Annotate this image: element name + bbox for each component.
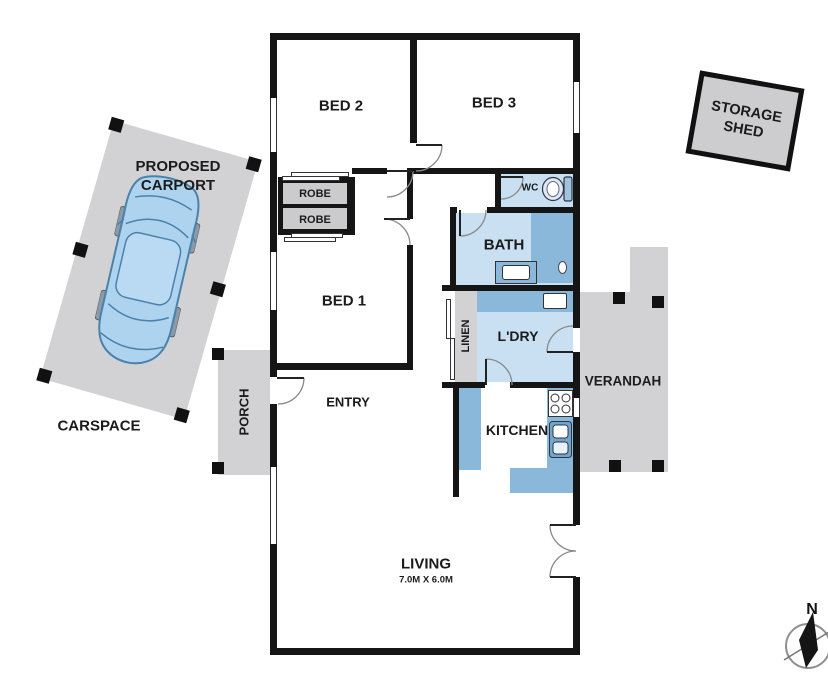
toilet-icon — [540, 174, 574, 204]
carport-label-line1: PROPOSED — [135, 158, 220, 175]
laundry-floor — [477, 312, 573, 382]
carport-post — [174, 407, 190, 423]
post — [652, 460, 664, 472]
wall — [487, 207, 580, 213]
carport-post — [72, 242, 88, 258]
kitchen-sink-icon — [549, 421, 572, 458]
car-icon — [86, 165, 210, 374]
bath-fitting — [558, 261, 567, 274]
post — [652, 296, 664, 308]
room-label-bath: BATH — [484, 237, 525, 254]
wall — [270, 33, 580, 40]
wall — [442, 382, 485, 388]
wall — [573, 352, 580, 398]
carport-post — [210, 281, 226, 297]
room-label-verandah: VERANDAH — [585, 374, 662, 389]
verandah-area — [630, 247, 668, 292]
carspace-label: CARSPACE — [57, 418, 140, 435]
carport-label: PROPOSED CARPORT — [135, 157, 220, 195]
wall — [270, 404, 277, 467]
wall — [270, 544, 277, 655]
wall — [450, 207, 456, 291]
post — [613, 292, 625, 304]
wall — [270, 648, 580, 655]
room-label-living: LIVING — [401, 556, 451, 573]
post — [609, 460, 621, 472]
wall — [573, 133, 580, 328]
room-label-bed1: BED 1 — [322, 293, 366, 310]
post — [212, 462, 224, 474]
wall — [270, 33, 277, 98]
storage-shed: STORAGE SHED — [686, 70, 805, 171]
living-dimensions: 7.0M X 6.0M — [399, 575, 453, 586]
sliding-door — [282, 176, 340, 181]
laundry-sink — [543, 293, 567, 309]
bed1-window — [270, 252, 277, 310]
kitchen-window — [573, 398, 580, 417]
room-label-entry: ENTRY — [326, 395, 370, 410]
wall — [442, 285, 580, 291]
room-label-linen: LINEN — [460, 320, 472, 353]
wall — [573, 417, 580, 525]
carport-post — [36, 368, 52, 384]
sliding-door — [450, 338, 455, 380]
carport-label-line2: CARPORT — [141, 177, 215, 194]
room-label-kitchen: KITCHEN — [486, 422, 548, 438]
wall — [495, 168, 501, 207]
carport-post — [108, 117, 124, 133]
wall — [510, 382, 580, 388]
room-label-bed3: BED 3 — [472, 95, 516, 112]
wall — [352, 168, 387, 174]
wall — [573, 577, 580, 655]
wall — [277, 363, 413, 370]
wall — [453, 382, 459, 497]
room-label-robe2: ROBE — [299, 214, 331, 226]
kitchen-bench — [459, 388, 481, 470]
wall — [573, 33, 580, 82]
room-label-robe1: ROBE — [299, 188, 331, 200]
shower — [531, 213, 573, 283]
vanity-sink — [502, 265, 530, 280]
carport-post — [246, 156, 262, 172]
floor-plan: STORAGE SHED N BED 2 BED 3 BED 1 ROBE RO… — [0, 0, 828, 684]
sliding-door — [446, 299, 451, 339]
wall — [407, 245, 413, 370]
room-label-wc: WC — [522, 183, 539, 194]
sliding-door — [284, 237, 336, 242]
room-label-porch: PORCH — [237, 389, 252, 436]
living-window — [270, 467, 277, 544]
room-label-laundry: L'DRY — [498, 328, 539, 344]
wall — [410, 33, 417, 143]
post — [212, 348, 224, 360]
bed3-window — [573, 82, 580, 133]
compass-north-icon: N — [772, 586, 828, 684]
room-label-bed2: BED 2 — [319, 98, 363, 115]
stove-icon — [548, 390, 573, 417]
wall — [407, 168, 413, 219]
bed2-window — [270, 98, 277, 152]
kitchen-bench — [510, 468, 573, 493]
